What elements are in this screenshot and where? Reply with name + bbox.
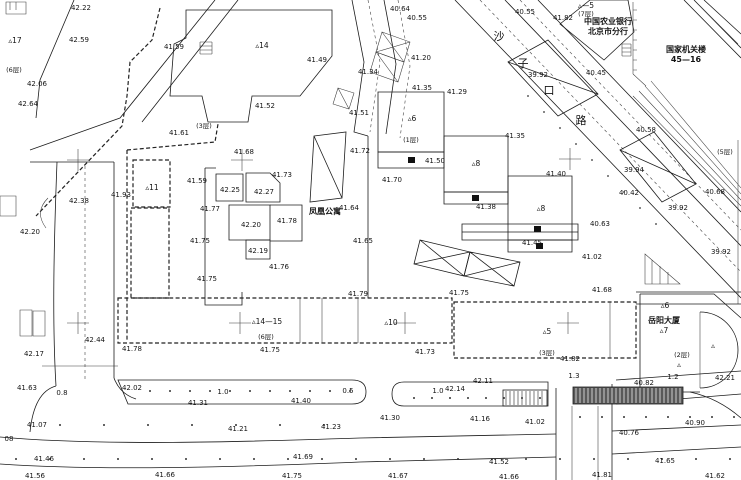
tree-dot-symbol xyxy=(525,458,527,460)
tree-dot-symbol xyxy=(321,458,323,460)
place-name-label: 中国农业银行 xyxy=(584,16,632,26)
elevation-label: 41.02 xyxy=(525,418,545,426)
elevation-label: 41.70 xyxy=(382,176,402,184)
cadastral-survey-drawing: 42.2242.5942.0642.6441.5941.5241.6141.49… xyxy=(0,0,741,480)
tree-dot-symbol xyxy=(457,458,459,460)
elevation-label: 41.62 xyxy=(705,472,725,480)
elevation-label: 41.66 xyxy=(499,473,520,480)
dimension-label: 1.0 xyxy=(432,387,443,395)
elevation-label: 40.68 xyxy=(705,188,725,196)
floor-count-label: (6层) xyxy=(6,66,22,74)
building-number-marker: ▵ xyxy=(711,341,715,350)
tree-dot-symbol xyxy=(467,397,469,399)
tree-dot-symbol xyxy=(169,390,171,392)
floor-count-label: (5层) xyxy=(717,148,733,156)
elevation-label: 41.93 xyxy=(111,191,131,199)
elevation-label: 41.68 xyxy=(234,148,254,156)
elevation-label: 40.90 xyxy=(685,419,705,427)
building-number-marker: ▵6 xyxy=(408,114,417,123)
elevation-label: 42.59 xyxy=(69,36,89,44)
tree-dot-symbol xyxy=(667,416,669,418)
tree-dot-symbol xyxy=(449,397,451,399)
tree-dot-symbol xyxy=(413,397,415,399)
road-point-symbol xyxy=(543,111,545,113)
dimension-label: 1.2 xyxy=(667,373,678,381)
elevation-label: 41.76 xyxy=(269,263,290,271)
hatched-step-bar xyxy=(573,387,683,404)
elevation-label: 42.22 xyxy=(71,4,91,12)
dimension-label: 1.3 xyxy=(568,372,579,380)
elevation-label: 41.23 xyxy=(321,423,341,431)
street-name-char: 子 xyxy=(518,57,529,70)
survey-map-canvas: 42.2242.5942.0642.6441.5941.5241.6141.49… xyxy=(0,0,741,480)
floor-count-label: (3层) xyxy=(196,122,212,130)
road-point-symbol xyxy=(575,143,577,145)
elevation-label: 41.75 xyxy=(282,472,302,480)
tree-dot-symbol xyxy=(689,416,691,418)
tree-dot-symbol xyxy=(191,424,193,426)
tree-dot-symbol xyxy=(309,390,311,392)
north-building-outline xyxy=(170,10,332,122)
elevation-label: 40.76 xyxy=(619,429,640,437)
tree-dot-symbol xyxy=(83,458,85,460)
elevation-label: 41.40 xyxy=(546,170,566,178)
elevation-label: 41.78 xyxy=(122,345,142,353)
dimension-label: 1.0 xyxy=(217,388,228,396)
tree-dot-symbol xyxy=(711,416,713,418)
elevation-label: 41.59 xyxy=(187,177,207,185)
elevation-label: 42.64 xyxy=(18,100,39,108)
survey-grid-cross xyxy=(559,148,581,170)
place-name-label: 国家机关楼 xyxy=(666,44,706,54)
elevation-label: 41.29 xyxy=(447,88,467,96)
elevation-label: 42.25 xyxy=(220,186,240,194)
elevation-label: 42.19 xyxy=(248,247,268,255)
elevation-label: 41.69 xyxy=(293,453,313,461)
tree-dot-symbol xyxy=(627,458,629,460)
tree-dot-symbol xyxy=(117,458,119,460)
elevation-label: 41.07 xyxy=(27,421,47,429)
elevation-label: 41.66 xyxy=(155,471,176,479)
tree-dot-symbol xyxy=(249,390,251,392)
map-symbols xyxy=(15,95,735,460)
tree-dot-symbol xyxy=(695,458,697,460)
elevation-label: 40.55 xyxy=(515,8,535,16)
elevation-label: 40.42 xyxy=(619,189,639,197)
elevation-label: 41.46 xyxy=(34,455,55,463)
elevation-label: 41.75 xyxy=(449,289,469,297)
road-point-symbol xyxy=(591,159,593,161)
elevation-label: 41.16 xyxy=(470,415,491,423)
elevation-label: 41.63 xyxy=(17,384,37,392)
elevation-label: 41.31 xyxy=(188,399,208,407)
tree-dot-symbol xyxy=(645,416,647,418)
tree-dot-symbol xyxy=(151,458,153,460)
building-number-marker: ▵14 xyxy=(255,41,269,50)
tree-dot-symbol xyxy=(431,397,433,399)
tree-dot-symbol xyxy=(423,458,425,460)
elevation-label: 41.65 xyxy=(353,237,373,245)
elevation-label: 41.20 xyxy=(411,54,431,62)
elevation-label: 41.77 xyxy=(200,205,220,213)
elevation-label: 41.75 xyxy=(260,346,280,354)
tree-dot-symbol xyxy=(229,390,231,392)
elevation-label: 41.35 xyxy=(412,84,432,92)
road-point-symbol xyxy=(527,95,529,97)
elevation-label: 42.21 xyxy=(715,374,735,382)
tree-dot-symbol xyxy=(729,458,731,460)
center-north-road xyxy=(333,0,410,298)
elevation-label: 39.94 xyxy=(624,166,645,174)
road-point-symbol xyxy=(559,127,561,129)
elevation-label: 41.78 xyxy=(277,217,297,225)
elevation-label: 42.20 xyxy=(20,228,40,236)
tree-dot-symbol xyxy=(269,390,271,392)
elevation-label: 42.11 xyxy=(473,377,493,385)
building-number-marker: ▵10 xyxy=(384,318,398,327)
tree-dot-symbol xyxy=(559,458,561,460)
tree-dot-symbol xyxy=(15,458,17,460)
dimension-label: 0.8 xyxy=(56,389,67,397)
elevation-label: 41.68 xyxy=(592,286,612,294)
elevation-label: 41.21 xyxy=(228,425,248,433)
survey-grid-cross xyxy=(67,149,89,171)
tree-dot-symbol xyxy=(329,390,331,392)
floor-count-label: (6层) xyxy=(258,333,274,341)
elevation-label: 41.35 xyxy=(505,132,525,140)
tree-dot-symbol xyxy=(209,390,211,392)
elevation-label: 41.52 xyxy=(255,102,275,110)
elevation-label: 42.44 xyxy=(85,336,106,344)
road-point-symbol xyxy=(607,175,609,177)
tree-dot-symbol xyxy=(219,458,221,460)
elevation-label: 42.17 xyxy=(24,350,44,358)
tree-dot-symbol xyxy=(103,424,105,426)
tree-dot-symbol xyxy=(623,416,625,418)
floor-count-label: (2层) xyxy=(674,351,690,359)
elevation-label: 42.20 xyxy=(241,221,261,229)
tree-dot-symbol xyxy=(147,424,149,426)
building-number-marker: ▵6 xyxy=(661,301,670,310)
tree-dot-symbol xyxy=(521,397,523,399)
elevation-label: 41.50 xyxy=(425,157,445,165)
elevation-label: 41.45 xyxy=(522,239,542,247)
building-number-marker: ▵8 xyxy=(472,159,481,168)
elevation-label: 08 xyxy=(5,435,14,443)
elevation-label: 41.82 xyxy=(560,355,580,363)
elevation-label: 41.51 xyxy=(349,109,369,117)
elevation-label: 40.63 xyxy=(590,220,610,228)
elevation-label: 42.14 xyxy=(445,385,466,393)
elevation-label: 41.73 xyxy=(272,171,292,179)
elevation-label: 41.49 xyxy=(307,56,327,64)
elevation-label: 40.55 xyxy=(407,14,427,22)
elevation-label: 41.82 xyxy=(553,14,573,22)
elevation-label: 42.38 xyxy=(69,197,89,205)
tree-dot-symbol xyxy=(485,397,487,399)
tree-dot-symbol xyxy=(185,458,187,460)
street-name-char: 路 xyxy=(576,114,587,127)
elevation-label: 41.34 xyxy=(358,68,379,76)
tree-dot-symbol xyxy=(389,458,391,460)
building-number-marker: ▵17 xyxy=(8,36,22,45)
tree-dot-symbol xyxy=(59,424,61,426)
elevation-label: 42.06 xyxy=(27,80,48,88)
elevation-label: 41.40 xyxy=(291,397,311,405)
floor-count-label: (1层) xyxy=(403,136,419,144)
elevation-label: 39.92 xyxy=(711,248,731,256)
road-point-symbol xyxy=(655,223,657,225)
elevation-label: 41.64 xyxy=(339,204,360,212)
survey-grid-cross xyxy=(67,312,89,334)
elevation-label: 42.02 xyxy=(122,384,142,392)
elevation-label: 40.45 xyxy=(586,69,606,77)
building-number-marker: ▵14—15 xyxy=(252,317,283,326)
elevation-label: 41.73 xyxy=(415,348,435,356)
tree-dot-symbol xyxy=(253,458,255,460)
elevation-label: 41.30 xyxy=(380,414,400,422)
elevation-label: 41.75 xyxy=(190,237,210,245)
street-name-char: 沙 xyxy=(494,30,505,43)
tree-dot-symbol xyxy=(601,416,603,418)
dimension-label: 0.5 xyxy=(342,387,353,395)
elevation-label: 41.52 xyxy=(489,458,509,466)
tree-dot-symbol xyxy=(287,458,289,460)
elevation-label: 42.27 xyxy=(254,188,274,196)
central-compound-buildings xyxy=(127,124,346,342)
tree-dot-symbol xyxy=(189,390,191,392)
place-name-label: 岳阳大厦 xyxy=(648,315,681,325)
elevation-label: 40.58 xyxy=(636,126,656,134)
place-name-label: 北京市分行 xyxy=(588,26,628,36)
building-number-marker: ▵11 xyxy=(145,183,159,192)
building-number-marker: ▵—5 xyxy=(578,1,594,10)
elevation-label: 41.61 xyxy=(169,129,189,137)
building-number-marker: ▵5 xyxy=(543,327,552,336)
elevation-label: 39.92 xyxy=(668,204,688,212)
stair-hatch-bars xyxy=(503,387,683,406)
elevation-label: 41.65 xyxy=(655,457,675,465)
elevation-label: 41.79 xyxy=(348,290,368,298)
tree-dot-symbol xyxy=(503,397,505,399)
tree-dot-symbol xyxy=(579,416,581,418)
survey-grid-cross xyxy=(557,312,579,334)
elevation-label: 41.38 xyxy=(476,203,496,211)
elevation-label: 41.56 xyxy=(25,472,46,480)
place-name-label: 45—16 xyxy=(671,55,702,64)
tree-dot-symbol xyxy=(539,397,541,399)
tree-dot-symbol xyxy=(289,390,291,392)
elevation-label: 41.72 xyxy=(350,147,370,155)
street-name-char: 口 xyxy=(544,84,555,97)
tree-dot-symbol xyxy=(733,416,735,418)
elevation-label: 39.92 xyxy=(528,71,548,79)
survey-grid-cross xyxy=(229,312,251,334)
floor-count-label: (3层) xyxy=(539,349,555,357)
tree-dot-symbol xyxy=(279,424,281,426)
elevation-label: 41.67 xyxy=(388,472,408,480)
elevation-label: 40.82 xyxy=(634,379,654,387)
building-number-marker: ▵7 xyxy=(660,326,669,335)
elevation-label: 41.02 xyxy=(582,253,602,261)
elevation-label: 40.64 xyxy=(390,5,411,13)
tree-dot-symbol xyxy=(149,390,151,392)
elevation-label: 41.81 xyxy=(592,471,612,479)
place-name-label: 凤凰公寓 xyxy=(309,206,341,216)
road-point-symbol xyxy=(639,207,641,209)
building-number-marker: ▵8 xyxy=(537,204,546,213)
building-number-marker: ▵ xyxy=(677,360,681,369)
tree-dot-symbol xyxy=(593,458,595,460)
elevation-label: 41.59 xyxy=(164,43,184,51)
elevation-label: 41.75 xyxy=(197,275,217,283)
tree-dot-symbol xyxy=(355,458,357,460)
